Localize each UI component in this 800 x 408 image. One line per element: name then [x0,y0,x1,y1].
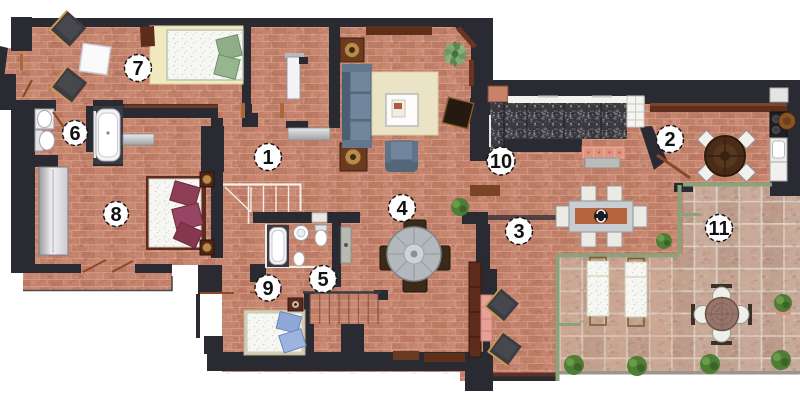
svg-text:2: 2 [664,129,675,151]
svg-text:11: 11 [708,218,729,240]
svg-text:8: 8 [110,204,121,226]
svg-text:10: 10 [490,151,512,173]
svg-text:4: 4 [396,198,408,220]
svg-text:6: 6 [69,123,80,145]
svg-text:7: 7 [132,58,143,80]
svg-text:9: 9 [262,278,273,300]
svg-text:3: 3 [513,221,524,243]
svg-text:1: 1 [262,147,273,169]
svg-text:5: 5 [317,269,328,291]
